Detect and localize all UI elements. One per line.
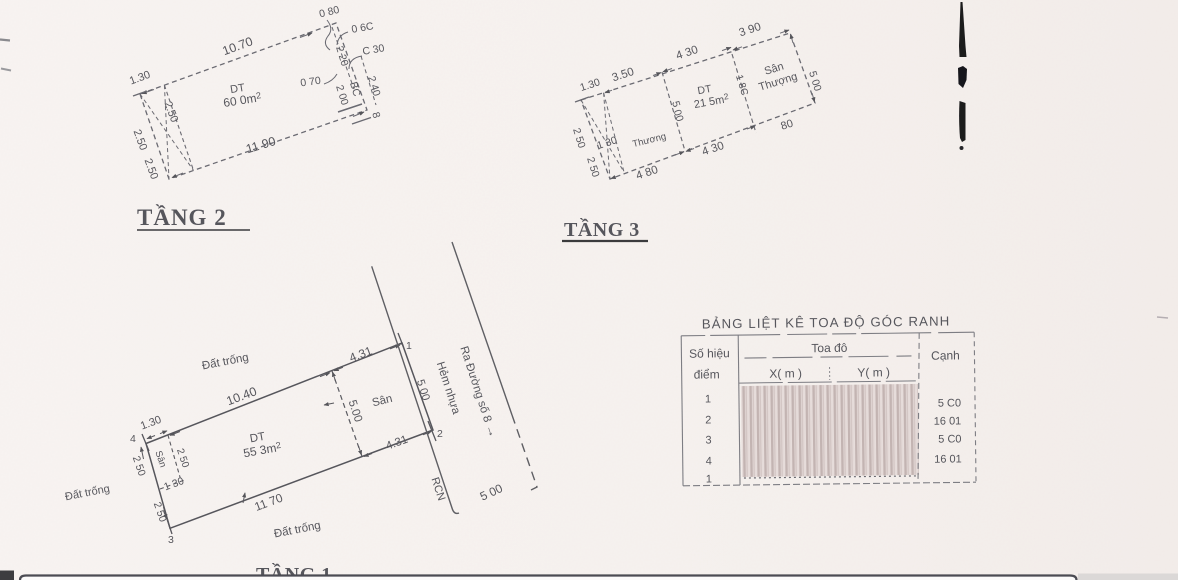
svg-text:16 01: 16 01 xyxy=(934,415,962,427)
svg-text:5 C0: 5 C0 xyxy=(938,397,961,409)
svg-text:3: 3 xyxy=(705,434,711,446)
svg-text:Cạnh: Cạnh xyxy=(931,348,960,362)
svg-text:Số hiệu: Số hiệu xyxy=(689,346,730,360)
svg-text:BẢNG LIỆT KÊ TOA ĐỘ GÓC RANH: BẢNG LIỆT KÊ TOA ĐỘ GÓC RANH xyxy=(702,314,951,332)
svg-text:Toa đô: Toa đô xyxy=(811,341,848,355)
svg-text:2: 2 xyxy=(437,428,443,440)
svg-text:TẦNG 3: TẦNG 3 xyxy=(564,217,640,241)
svg-text:DT: DT xyxy=(697,83,713,97)
svg-text:TẦNG 2: TẦNG 2 xyxy=(137,204,227,230)
svg-text:2: 2 xyxy=(705,414,711,426)
svg-text:điểm: điểm xyxy=(694,367,720,381)
svg-text:4: 4 xyxy=(130,433,136,445)
svg-text:X( m ): X( m ) xyxy=(769,366,802,380)
svg-text:1: 1 xyxy=(705,393,711,405)
svg-text:16 01: 16 01 xyxy=(934,453,962,465)
svg-text:3: 3 xyxy=(168,534,174,546)
svg-text:1: 1 xyxy=(706,473,712,485)
svg-text:Y( m ): Y( m ) xyxy=(857,365,890,379)
svg-text:5 C0: 5 C0 xyxy=(938,433,961,445)
svg-text:1: 1 xyxy=(406,340,412,352)
svg-text:4: 4 xyxy=(706,455,712,467)
